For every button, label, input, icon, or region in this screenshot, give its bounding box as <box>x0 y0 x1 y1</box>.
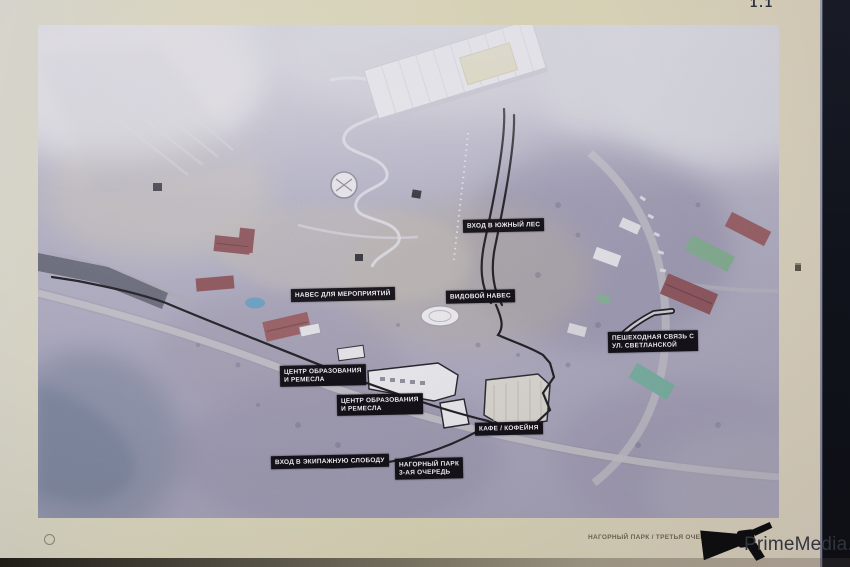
label-text: ВХОД В ЮЖНЫЙ ЛЕС <box>467 221 540 231</box>
punch-hole-marker <box>44 534 55 545</box>
masterplan-map <box>38 25 779 518</box>
map-label-carriage-sloboda-entrance: ВХОД В ЭКИПАЖНУЮ СЛОБОДУ <box>271 454 389 469</box>
map-label-event-canopy: НАВЕС ДЛЯ МЕРОПРИЯТИЙ <box>291 287 395 302</box>
map-label-pedestrian-link-svetlanskaya: ПЕШЕХОДНАЯ СВЯЗЬ С УЛ. СВЕТЛАНСКОЙ <box>608 330 699 353</box>
sheet-number: 1.1 <box>750 0 790 10</box>
label-text: ВИДОВОЙ НАВЕС <box>450 292 511 301</box>
photo-haze <box>38 25 779 518</box>
margin-mark <box>795 263 801 271</box>
map-label-viewpoint-canopy: ВИДОВОЙ НАВЕС <box>446 289 515 303</box>
label-text: УЛ. СВЕТЛАНСКОЙ <box>612 341 694 351</box>
label-text: КАФЕ / КОФЕЙНЯ <box>479 424 539 433</box>
primemedia-watermark: PrimeMedia.ru <box>700 520 850 564</box>
label-text: ЦЕНТР ОБРАЗОВАНИЯ <box>341 396 419 406</box>
photo-background-right <box>822 0 850 567</box>
label-text: И РЕМЕСЛА <box>284 375 362 385</box>
label-text: ВХОД В ЭКИПАЖНУЮ СЛОБОДУ <box>275 456 385 466</box>
map-label-nagorny-park-phase3: НАГОРНЫЙ ПАРК 3-АЯ ОЧЕРЕДЬ <box>395 457 464 479</box>
label-text: 3-АЯ ОЧЕРЕДЬ <box>399 468 459 477</box>
map-label-education-crafts-center-lower: ЦЕНТР ОБРАЗОВАНИЯ И РЕМЕСЛА <box>337 393 423 416</box>
label-text: ЦЕНТР ОБРАЗОВАНИЯ <box>284 367 362 377</box>
photographed-masterplan-board: ВХОД В ЮЖНЫЙ ЛЕС НАВЕС ДЛЯ МЕРОПРИЯТИЙ В… <box>0 0 850 567</box>
map-label-south-forest-entrance: ВХОД В ЮЖНЫЙ ЛЕС <box>463 218 545 233</box>
label-text: И РЕМЕСЛА <box>341 404 419 414</box>
aerial-photo <box>38 25 779 518</box>
map-label-cafe-coffeeshop: КАФЕ / КОФЕЙНЯ <box>475 421 543 435</box>
label-text: НАВЕС ДЛЯ МЕРОПРИЯТИЙ <box>295 290 391 300</box>
map-label-education-crafts-center-upper: ЦЕНТР ОБРАЗОВАНИЯ И РЕМЕСЛА <box>280 364 366 387</box>
watermark-site-text: PrimeMedia.ru <box>744 534 850 556</box>
label-text: ПЕШЕХОДНАЯ СВЯЗЬ С <box>612 333 694 343</box>
